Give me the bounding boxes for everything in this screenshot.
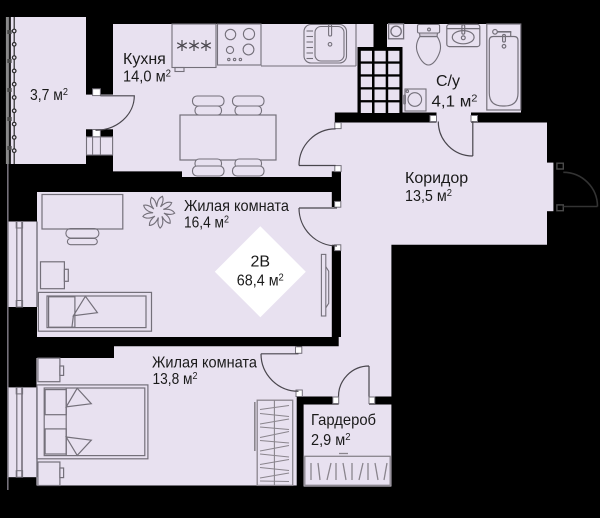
svg-text:Гардероб: Гардероб (311, 412, 376, 429)
svg-text:Коридор: Коридор (405, 170, 468, 187)
svg-text:С/у: С/у (436, 73, 460, 90)
svg-text:2В: 2В (251, 254, 271, 271)
svg-text:4,1 м2: 4,1 м2 (432, 93, 478, 111)
svg-text:16,4 м2: 16,4 м2 (184, 214, 229, 232)
svg-text:68,4 м2: 68,4 м2 (237, 272, 284, 290)
svg-text:2,9 м2: 2,9 м2 (311, 431, 351, 449)
svg-text:13,8 м2: 13,8 м2 (153, 370, 198, 388)
svg-text:Жилая комната: Жилая комната (184, 198, 289, 215)
svg-text:Жилая комната: Жилая комната (152, 355, 257, 372)
svg-text:13,5 м2: 13,5 м2 (405, 187, 452, 205)
svg-text:3,7 м2: 3,7 м2 (30, 86, 68, 104)
svg-text:Кухня: Кухня (123, 51, 166, 68)
svg-text:14,0 м2: 14,0 м2 (123, 68, 171, 86)
